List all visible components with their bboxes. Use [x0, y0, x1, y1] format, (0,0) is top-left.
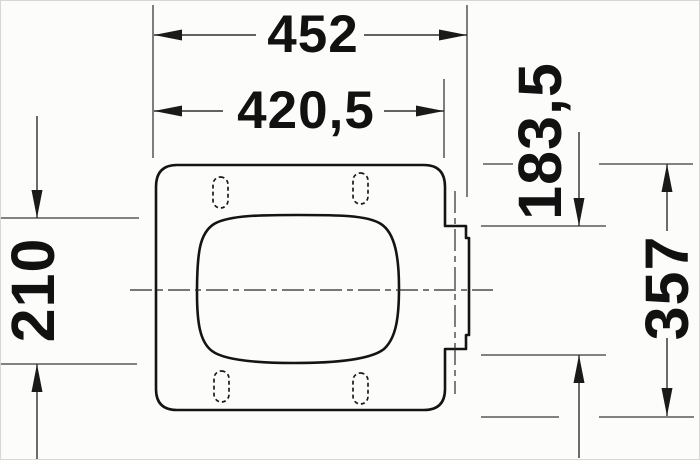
arrowhead-down	[32, 190, 43, 218]
seat-outer-outline	[156, 165, 469, 410]
arrowhead-down	[662, 388, 673, 416]
arrowhead-left	[154, 106, 182, 117]
dim-label-overall-width: 452	[267, 5, 358, 64]
arrowhead-right	[439, 30, 467, 41]
dim-label-overall-depth: 357	[633, 236, 700, 341]
hinge-slot-top-right	[353, 173, 368, 204]
arrowhead-left	[154, 30, 182, 41]
dim-label-seat-body-width: 420,5	[237, 81, 375, 140]
dim-label-hinge-plate-height: 183,5	[506, 62, 574, 220]
arrowhead-up	[32, 364, 43, 392]
hinge-slot-bottom-left	[214, 371, 229, 402]
seat-outline-group	[130, 165, 493, 410]
arrowhead-up	[662, 164, 673, 192]
technical-drawing-canvas: 452 420,5 210 1	[0, 0, 700, 460]
seat-opening-outline	[197, 215, 399, 363]
dimension-opening-height: 210	[1, 116, 139, 459]
dimension-seat-body-width: 420,5	[154, 79, 444, 158]
seat-dimension-drawing: 452 420,5 210 1	[1, 1, 700, 460]
hinge-slot-top-left	[213, 177, 228, 208]
dimension-hinge-plate-height: 183,5	[481, 62, 606, 458]
hinge-slot-bottom-right	[353, 373, 368, 404]
dim-label-opening-height: 210	[1, 238, 67, 343]
arrowhead-down	[574, 198, 585, 226]
arrowhead-up	[574, 355, 585, 383]
arrowhead-right	[416, 106, 444, 117]
